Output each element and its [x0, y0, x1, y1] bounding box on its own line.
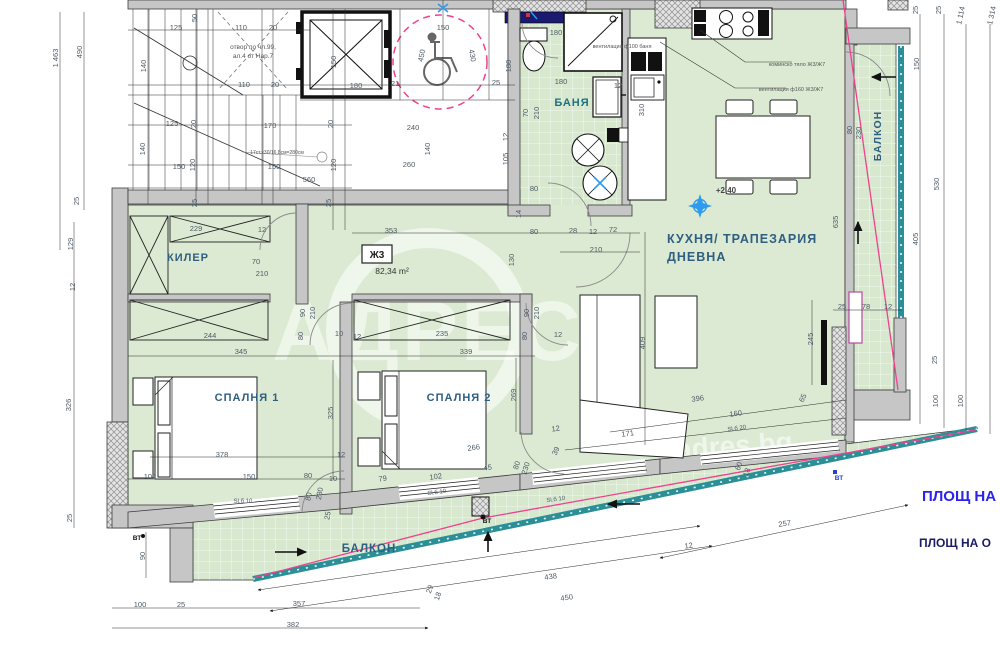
dimension-label: 150 — [173, 162, 186, 171]
dimension-label: 125 — [170, 23, 183, 32]
dimension-label: 229 — [190, 224, 203, 233]
coffee-table — [655, 296, 697, 368]
area-note: ПЛОЩ НА — [922, 488, 996, 505]
annotation-label: ал.4 от Нар.7 — [233, 53, 274, 60]
vt-point-left — [141, 534, 145, 538]
dimension-label: 180 — [555, 77, 568, 86]
room-label: СПАЛНЯ 2 — [427, 392, 492, 404]
stair-run-lines — [134, 28, 320, 186]
area-note: ПЛОЩ НА О — [919, 536, 991, 550]
bedroom1-top-wall — [128, 294, 270, 302]
annotation-label: вентилация ф100 баня — [593, 44, 652, 50]
dimension-label: 450 — [560, 592, 574, 603]
annotation-label: вентилация ф160 Ж3/Ж7 — [759, 87, 824, 93]
dimension-label: 140 — [423, 143, 432, 156]
dimension-label: 25 — [492, 78, 500, 87]
red-mark-icon — [526, 13, 530, 17]
dimension-label: 129 — [66, 238, 75, 251]
elevator-door-b — [384, 60, 391, 78]
dimension-label: 25 — [324, 199, 333, 207]
dimension-label: 20 — [189, 120, 198, 128]
elevator-rail-a — [296, 22, 302, 34]
annotation-label: ВТ — [835, 475, 843, 482]
room-label: БАЛКОН — [342, 543, 397, 555]
dimension-label: 110 — [235, 23, 247, 32]
entry-corridor-wall — [508, 9, 520, 214]
dimension-label: 90 — [138, 552, 147, 560]
bath-bottom-wall-b — [588, 205, 632, 216]
dimension-label: 150 — [268, 162, 281, 171]
blue-vt-mark — [833, 470, 837, 474]
dimension-label: 150 — [912, 58, 921, 71]
dimension-label: 180 — [504, 60, 513, 73]
magenta-frame — [849, 292, 862, 343]
dimension-label: 12 — [554, 330, 562, 339]
dimension-label: 80 — [520, 332, 529, 340]
dimension-label: 50 — [190, 14, 199, 22]
dimension-label: 260 — [403, 160, 416, 169]
bedroom2-top-wall — [352, 294, 532, 302]
dimension-label: 180 — [350, 81, 363, 90]
dimension-label: 100 — [956, 395, 965, 408]
kitchen-sink — [631, 75, 664, 100]
dimension-label: 102 — [429, 471, 443, 482]
dimension-label: 25 — [911, 6, 920, 14]
dimension-label: 210 — [256, 269, 269, 278]
dimension-label: 1 114 — [954, 6, 967, 26]
dimension-label: 70 — [252, 257, 260, 266]
dimension-label: 409 — [638, 337, 647, 350]
dimension-label: 10 — [329, 474, 337, 483]
dimension-label: 12 — [589, 227, 597, 236]
dimension-label: 14 — [514, 210, 523, 218]
dimension-label: 530 — [932, 178, 941, 191]
dimension-label: 560 — [303, 175, 316, 184]
dimension-label: 382 — [287, 620, 300, 629]
room-label: ДНЕВНА — [667, 250, 726, 264]
dimension-label: 110 — [238, 80, 250, 89]
dimension-label: 490 — [75, 46, 84, 59]
dimension-label: 78 — [862, 302, 870, 311]
dimension-label: 100 — [931, 395, 940, 408]
dimension-label: Sl.б 10 — [234, 499, 253, 505]
kitchen-appliance-b — [648, 52, 662, 71]
dimension-label: 210 — [532, 307, 541, 320]
dimension-label: 235 — [436, 329, 449, 338]
dimension-label: 80 — [530, 184, 538, 193]
dimension-label: 210 — [532, 107, 541, 120]
floor-plan-page: АДРЕС adres.bg — [0, 0, 1000, 666]
dimension-label: 79 — [378, 473, 388, 483]
dimension-label: 326 — [64, 399, 73, 412]
kitchen-appliance-a — [631, 52, 646, 71]
annotation-label: коминско тяло Ж3/Ж7 — [769, 62, 825, 68]
left-wall — [112, 188, 128, 422]
staircase — [128, 9, 327, 190]
dimension-label: 357 — [293, 599, 306, 608]
dimension-label: 102 — [144, 472, 157, 481]
dimension-label: 12 — [337, 450, 345, 459]
elevator — [296, 12, 391, 97]
dimension-label: 100 — [134, 600, 147, 609]
dimension-label: 150 — [437, 23, 450, 32]
wheelchair-icon — [424, 34, 457, 86]
dimension-label: 80 — [296, 332, 305, 340]
balcony-top-wall — [846, 28, 910, 44]
balcony-bottom-wall — [846, 390, 910, 420]
dimension-label: 150 — [243, 472, 256, 481]
dimension-label: 12 — [258, 225, 266, 234]
dimension-label: 339 — [460, 347, 473, 356]
stair-note-circle — [317, 152, 327, 162]
dimension-label: 90 — [522, 309, 531, 317]
dimension-label: 378 — [216, 450, 229, 459]
balcony-left-wall — [170, 528, 193, 582]
dimension-label: 240 — [407, 123, 420, 132]
dimension-label: 266 — [467, 442, 481, 453]
room-label: СПАЛНЯ 1 — [215, 392, 280, 404]
dimension-label: 28 — [569, 226, 577, 235]
dimension-label: 430 — [467, 48, 478, 62]
dimension-label: 25 — [177, 600, 185, 609]
dimension-label: 25 — [322, 511, 332, 521]
dimension-label: 325 — [326, 407, 335, 420]
dimension-label: 353 — [385, 226, 398, 235]
dimension-label: 12 — [551, 423, 561, 433]
dimension-label: 12 — [68, 283, 77, 291]
dimension-label: 12 — [353, 332, 361, 341]
dimension-label: 10 — [335, 329, 343, 338]
dimension-label: 25 — [65, 514, 74, 522]
dimension-label: 210 — [308, 307, 317, 320]
dimension-label: 45 — [483, 462, 493, 472]
dimension-label: 125 — [166, 119, 179, 128]
dimension-label: 25 — [190, 199, 199, 207]
dimension-label: 438 — [544, 571, 558, 582]
dimension-label: 1 463 — [51, 49, 60, 68]
dimension-label: 130 — [507, 254, 516, 267]
floor-opening-cross — [218, 12, 288, 90]
dimension-label: 80 — [845, 126, 854, 134]
dimension-label: 25 — [934, 6, 943, 14]
annotation-label: 17ст.х30/16,8см=280см — [250, 150, 304, 156]
dimension-label: 25 — [72, 197, 81, 205]
stair-marker — [183, 56, 197, 70]
room-label: БАЛКОН — [872, 111, 884, 161]
dimension-label: 80 — [303, 492, 313, 502]
hatched-wall-top-right — [888, 0, 908, 10]
dimension-label: 310 — [637, 104, 646, 117]
dimension-label: 345 — [235, 347, 248, 356]
dimension-label: 1 314 — [985, 5, 998, 25]
dimension-label: 160 — [729, 408, 743, 419]
tv — [821, 320, 827, 385]
dimension-label: 12 — [501, 133, 510, 141]
closet-wall — [296, 204, 308, 304]
dimension-label: 25 — [930, 356, 939, 364]
dimension-label: 450 — [416, 48, 427, 62]
dimension-label: 140 — [139, 60, 148, 73]
dimension-label: 230 — [854, 127, 863, 140]
dimension-label: 245 — [806, 333, 815, 346]
stove — [692, 8, 772, 39]
annotation-label: 82,34 m² — [375, 266, 409, 276]
elevator-rail-b — [296, 68, 302, 80]
dimension-label: 396 — [691, 393, 705, 404]
dimension-label: 105 — [501, 153, 510, 166]
hatched-wall-top — [493, 0, 586, 12]
dimension-label: 140 — [138, 143, 147, 156]
dimension-label: 180 — [550, 28, 563, 37]
dimension-label: 12 — [614, 81, 622, 90]
annotation-label: +2,40 — [716, 186, 737, 195]
dimension-label: 257 — [778, 518, 792, 529]
room-label: КИЛЕР — [167, 252, 209, 264]
dimension-label: 70 — [521, 109, 530, 117]
dimension-label: 120 — [188, 159, 197, 172]
dimension-label: 12 — [684, 540, 694, 550]
room-label: БАНЯ — [554, 97, 589, 109]
dimension-label: 18 — [432, 591, 443, 602]
dimension-label: 405 — [911, 233, 920, 246]
room-label: КУХНЯ/ ТРАПЕЗАРИЯ — [667, 232, 817, 246]
dimension-label: 72 — [609, 225, 617, 234]
annotation-label: ВТ — [483, 518, 491, 525]
dimension-label: 120 — [329, 159, 338, 172]
elevator-door-a — [384, 30, 391, 48]
floor-plan-drawing: АДРЕС adres.bg — [0, 0, 1000, 666]
dimension-label: 171 — [621, 428, 635, 439]
dimension-label: 150 — [329, 56, 338, 69]
dimension-label: 635 — [831, 216, 840, 229]
shower — [564, 13, 622, 71]
dimension-label: 20 — [326, 120, 335, 128]
dimension-label: 21 — [391, 79, 399, 88]
dimension-label: 80 — [304, 471, 312, 480]
dimension-label: 20 — [271, 80, 279, 89]
dimension-label: 210 — [590, 245, 603, 254]
area-notes: ПЛОЩ НАПЛОЩ НА О — [919, 488, 996, 550]
annotation-label: Ж3 — [369, 250, 385, 261]
annotation-label: ВТ — [133, 535, 141, 542]
dimension-label: 244 — [204, 331, 217, 340]
dimension-label: 25 — [838, 302, 846, 311]
annotation-label: отвор по чл.99, — [230, 44, 276, 51]
dimension-label: 269 — [509, 389, 518, 402]
dimension-label: 80 — [530, 227, 538, 236]
dimension-label: 12 — [884, 302, 892, 311]
balcony-right-wall — [894, 318, 906, 392]
dimension-label: 20 — [269, 23, 277, 32]
boiler — [583, 166, 617, 200]
dimension-label: 170 — [264, 121, 277, 130]
dimension-label: 90 — [298, 309, 307, 317]
